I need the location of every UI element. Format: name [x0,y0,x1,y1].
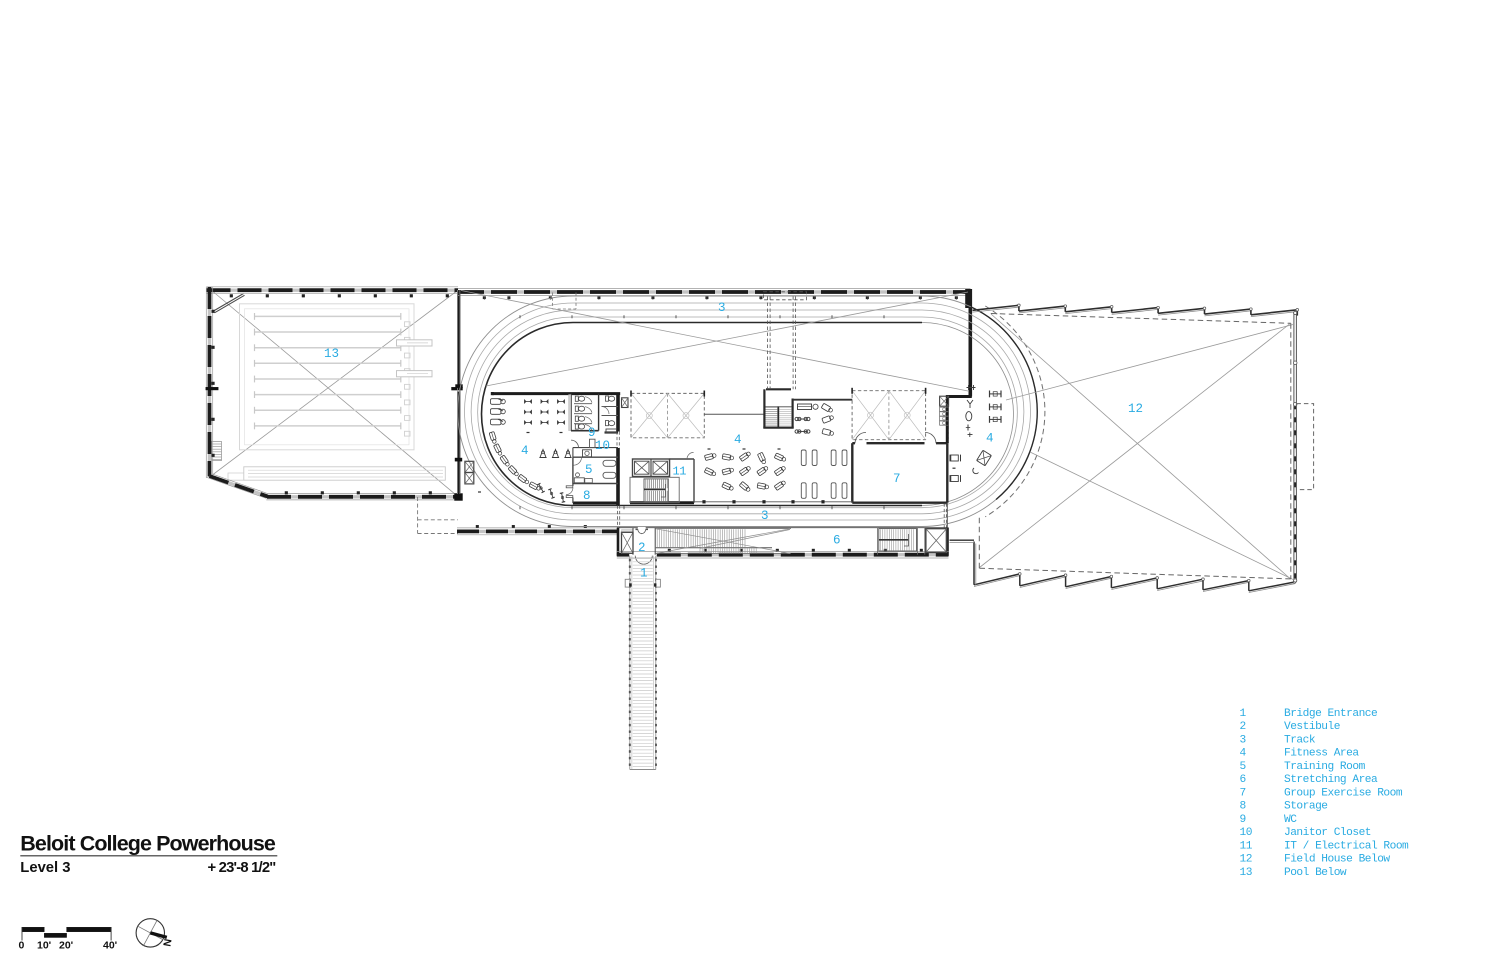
svg-text:Storage: Storage [1284,801,1328,813]
svg-text:6: 6 [1240,774,1246,786]
svg-text:Field House Below: Field House Below [1284,854,1390,866]
svg-text:10: 10 [595,439,610,453]
svg-text:Bridge Entrance: Bridge Entrance [1284,708,1377,720]
svg-text:Training Room: Training Room [1284,761,1366,773]
svg-text:10: 10 [1240,827,1253,839]
svg-text:12: 12 [1128,402,1143,416]
svg-text:+ 23'-8 1/2": + 23'-8 1/2" [208,860,277,876]
svg-text:1: 1 [1240,708,1247,720]
svg-text:7: 7 [893,472,901,486]
svg-text:6: 6 [833,534,841,548]
svg-text:11: 11 [1240,840,1253,852]
svg-text:Pool Below: Pool Below [1284,867,1347,879]
svg-text:13: 13 [324,347,339,361]
svg-text:8: 8 [1240,801,1246,813]
svg-text:12: 12 [1240,854,1252,866]
svg-text:2: 2 [1240,721,1246,733]
svg-text:WC: WC [1284,814,1297,826]
svg-text:9: 9 [1240,814,1246,826]
svg-text:IT / Electrical Room: IT / Electrical Room [1284,840,1409,852]
svg-text:Fitness Area: Fitness Area [1284,748,1359,760]
svg-text:4: 4 [734,433,742,447]
svg-text:1: 1 [640,567,648,581]
svg-text:7: 7 [1240,787,1246,799]
svg-text:Track: Track [1284,734,1316,746]
svg-text:2: 2 [638,541,646,555]
svg-text:Stretching Area: Stretching Area [1284,774,1378,786]
svg-text:3: 3 [761,509,769,523]
svg-text:40': 40' [103,940,117,952]
svg-text:10': 10' [37,940,51,952]
svg-text:Janitor Closet: Janitor Closet [1284,827,1371,839]
svg-text:Beloit College Powerhouse: Beloit College Powerhouse [20,832,276,856]
svg-text:4: 4 [986,432,994,446]
svg-text:3: 3 [1240,734,1246,746]
svg-text:20': 20' [59,940,73,952]
svg-text:0: 0 [19,940,25,952]
svg-text:8: 8 [583,489,591,503]
svg-text:5: 5 [1240,761,1246,773]
svg-text:11: 11 [673,465,687,479]
svg-text:9: 9 [588,426,596,440]
svg-text:4: 4 [1240,748,1247,760]
svg-text:3: 3 [718,301,726,315]
svg-text:4: 4 [521,444,529,458]
svg-text:Group Exercise Room: Group Exercise Room [1284,787,1403,799]
svg-text:13: 13 [1240,867,1252,879]
svg-text:Vestibule: Vestibule [1284,721,1340,733]
svg-text:Level 3: Level 3 [20,860,70,876]
svg-text:5: 5 [585,463,593,477]
